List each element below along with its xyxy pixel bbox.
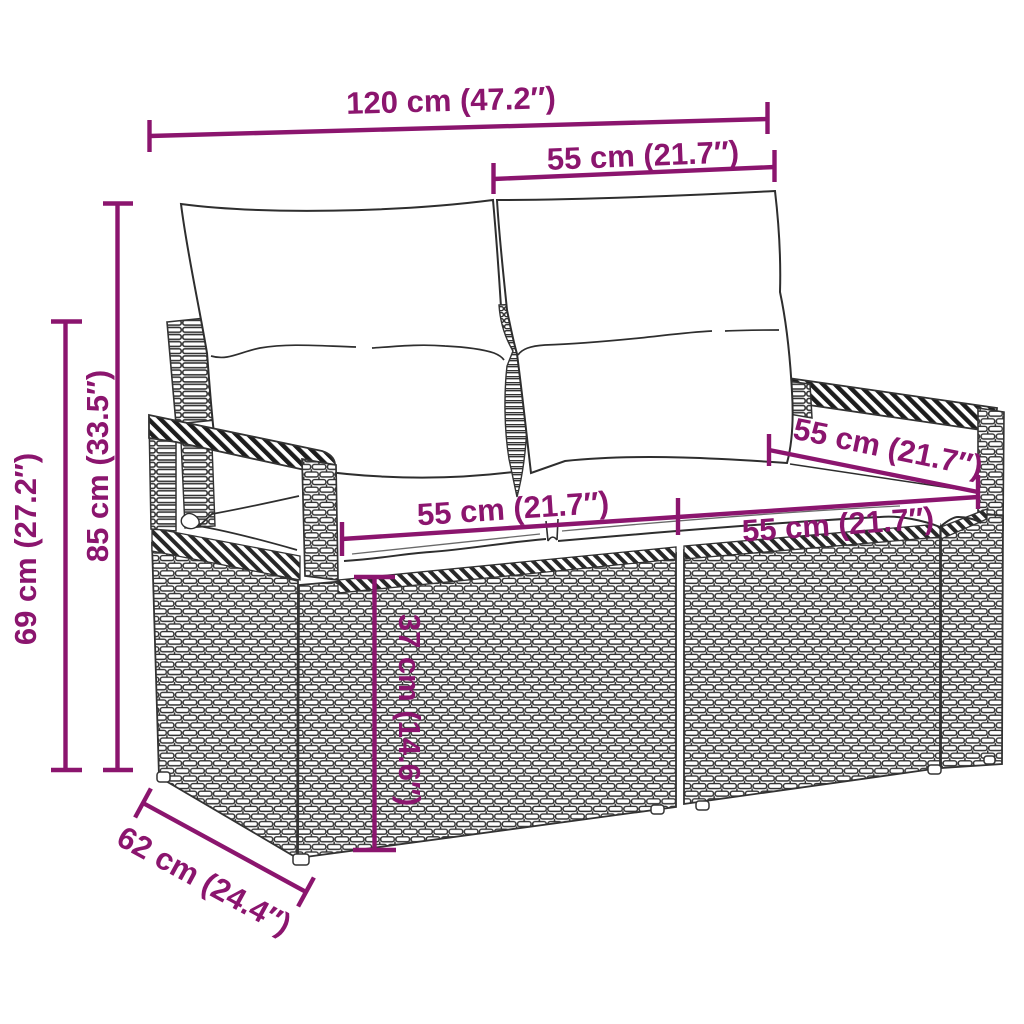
svg-text:69 cm (27.2″): 69 cm (27.2″) [8, 453, 43, 645]
svg-text:37 cm (14.6″): 37 cm (14.6″) [392, 614, 427, 806]
svg-text:85 cm (33.5″): 85 cm (33.5″) [80, 370, 115, 562]
svg-text:120 cm (47.2″): 120 cm (47.2″) [346, 80, 556, 121]
